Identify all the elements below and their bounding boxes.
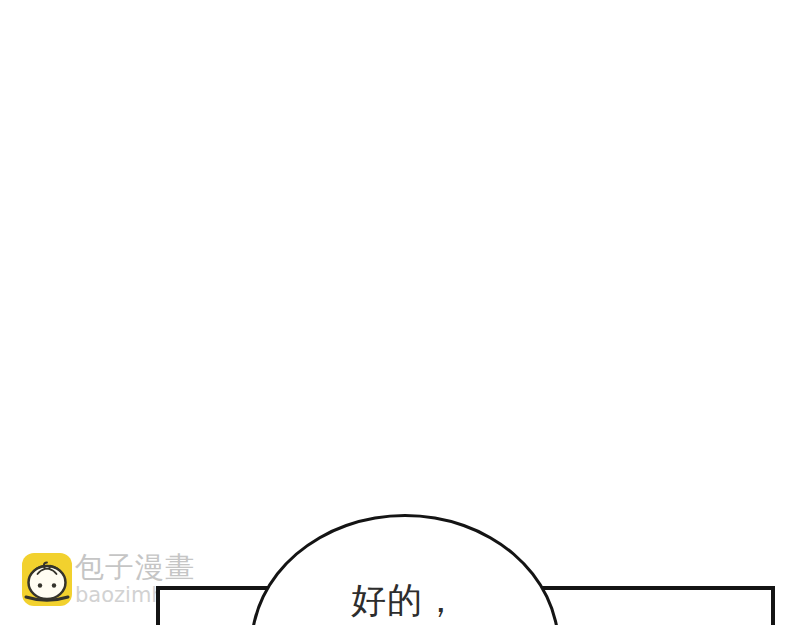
baozi-bun-icon (22, 553, 72, 606)
speech-bubble-text: 好的， (250, 580, 560, 620)
comic-page: 包子漫畫 baozimh.com 好的， (0, 0, 800, 625)
watermark-brand-name: 包子漫畫 (75, 553, 216, 582)
